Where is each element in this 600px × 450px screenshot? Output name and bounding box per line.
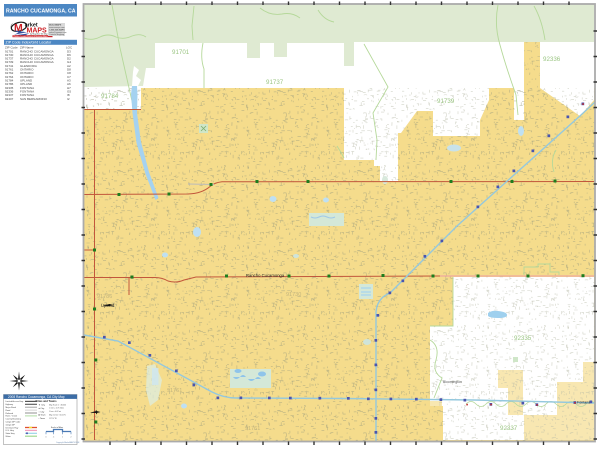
svg-text:Rancho Cucamonga: Rancho Cucamonga	[246, 273, 285, 278]
svg-text:River / Creek: River / Creek	[6, 416, 18, 418]
svg-text:91761: 91761	[245, 426, 260, 432]
svg-text:Interstate Hwy: Interstate Hwy	[6, 426, 19, 429]
svg-text:92335: 92335	[514, 335, 532, 342]
svg-text:117.57 W: 117.57 W	[49, 418, 57, 420]
svg-text:91739: 91739	[437, 98, 455, 105]
svg-text:Premier Leading Source of Busi: Premier Leading Source of Business Maps	[14, 36, 48, 38]
svg-text:2: 2	[71, 436, 72, 438]
svg-text:3-Digit ZIP: 3-Digit ZIP	[6, 423, 16, 426]
svg-text:.5: .5	[53, 436, 54, 438]
svg-text:1 inch = 0.76 miles: 1 inch = 0.76 miles	[49, 408, 64, 410]
svg-text:■ Town: ■ Town	[39, 414, 47, 417]
svg-text:91730: 91730	[286, 292, 301, 298]
svg-text:SAN BERNARDINO: SAN BERNARDINO	[20, 97, 48, 101]
svg-text:▫ Town: ▫ Town	[39, 418, 46, 420]
svg-text:Fontana: Fontana	[577, 400, 590, 404]
svg-text:91737: 91737	[266, 79, 284, 86]
svg-text:Highway: Highway	[6, 404, 14, 406]
svg-text:RANCHO CUCAMONGA, CA: RANCHO CUCAMONGA, CA	[6, 8, 76, 14]
svg-text:92407: 92407	[5, 97, 14, 101]
svg-text:1 km = 0.62 mi: 1 km = 0.62 mi	[49, 411, 61, 413]
svg-text:Road: Road	[6, 410, 11, 412]
svg-text:0: 0	[46, 436, 47, 438]
svg-text:2008 Rancho Cucamonga, CA City: 2008 Rancho Cucamonga, CA City Map	[8, 395, 65, 399]
svg-text:County Boundary: County Boundary	[6, 418, 21, 421]
svg-text:Railroad: Railroad	[6, 413, 13, 415]
svg-text:Map Center: 34.11 N: Map Center: 34.11 N	[49, 414, 66, 417]
svg-text:Cities and Towns: Cities and Towns	[35, 399, 57, 403]
svg-text:I2: I2	[67, 97, 70, 101]
svg-text:5-Digit ZIP Code: 5-Digit ZIP Code	[6, 421, 22, 424]
svg-text:Custom Mapping: Custom Mapping	[49, 33, 64, 36]
svg-text:State Hwy: State Hwy	[6, 432, 15, 435]
svg-text:● City: ● City	[39, 407, 46, 410]
svg-text:Bloomington: Bloomington	[443, 380, 462, 384]
svg-text:Water: Water	[6, 435, 12, 438]
svg-text:Limited Access Hwy: Limited Access Hwy	[6, 400, 24, 403]
svg-text:92336: 92336	[543, 56, 561, 63]
svg-text:91784: 91784	[101, 93, 119, 100]
svg-text:91761: 91761	[167, 388, 182, 394]
svg-text:Major Road: Major Road	[6, 407, 16, 409]
svg-text:○ City: ○ City	[39, 410, 46, 413]
svg-text:91701: 91701	[172, 49, 190, 56]
svg-text:91786: 91786	[97, 294, 112, 300]
svg-text:U.S. Hwy: U.S. Hwy	[6, 430, 14, 432]
svg-text:1: 1	[62, 436, 63, 438]
svg-text:★ City: ★ City	[39, 404, 46, 407]
svg-text:Copyright MarketMAPS 2008: Copyright MarketMAPS 2008	[56, 441, 79, 444]
svg-text:92337: 92337	[500, 425, 518, 432]
svg-text:Map Scale 1 : 48,000: Map Scale 1 : 48,000	[49, 404, 66, 406]
svg-text:ZIP Code Index/Grid Locator: ZIP Code Index/Grid Locator	[6, 41, 52, 45]
